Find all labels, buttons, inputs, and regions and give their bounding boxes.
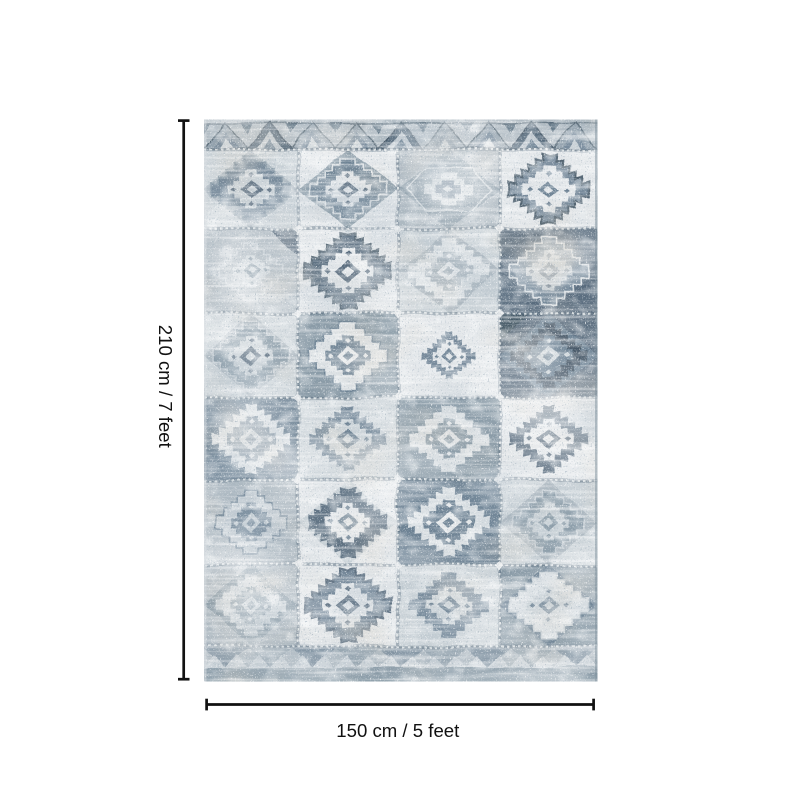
svg-text:150 cm / 5 feet: 150 cm / 5 feet: [336, 720, 460, 741]
svg-text:210 cm / 7 feet: 210 cm / 7 feet: [155, 325, 176, 449]
